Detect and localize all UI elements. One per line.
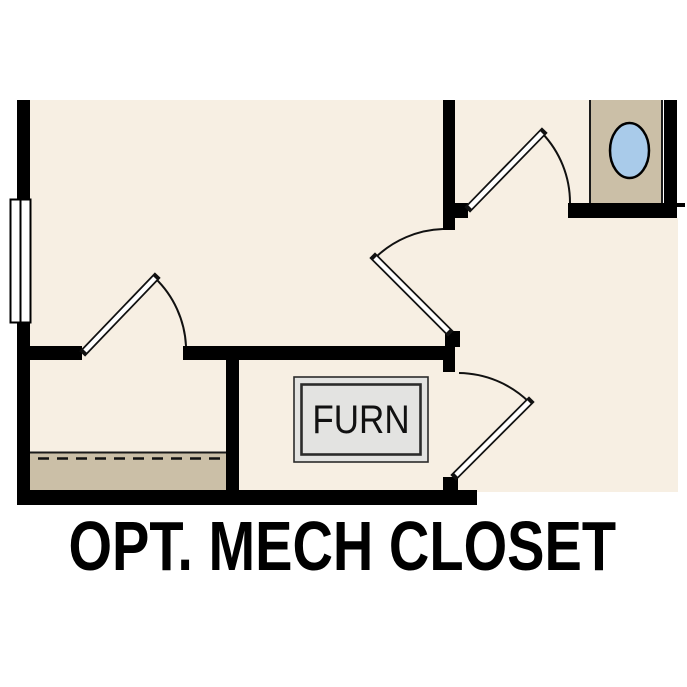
- wall-bath-bottom: [568, 203, 677, 218]
- plan-title: OPT. MECH CLOSET: [0, 511, 680, 581]
- sink-basin: [610, 123, 649, 178]
- wall-right-bath: [664, 100, 677, 218]
- wall-furn-right-top-stub: [443, 360, 455, 372]
- wall-mid-left-segment: [30, 346, 82, 360]
- window-symbol: [11, 200, 31, 323]
- vanity-counter: [589, 100, 663, 205]
- wall-bottom: [17, 490, 477, 505]
- furnace-label: FURN: [302, 377, 419, 462]
- wall-bath-bottom-tick: [677, 203, 685, 207]
- wall-mid-right-segment: [183, 346, 455, 360]
- wall-middle-vertical: [443, 100, 455, 230]
- wall-left-lower: [17, 322, 30, 505]
- wall-closet-divider: [226, 357, 239, 490]
- plan-title-text: OPT. MECH CLOSET: [68, 511, 616, 581]
- wall-left-upper: [17, 100, 30, 200]
- floor-plan-canvas: FURN OPT. MECH CLOSET: [0, 0, 687, 687]
- closet-shelf: [30, 452, 227, 490]
- wall-bath-jamb-stub: [455, 203, 468, 218]
